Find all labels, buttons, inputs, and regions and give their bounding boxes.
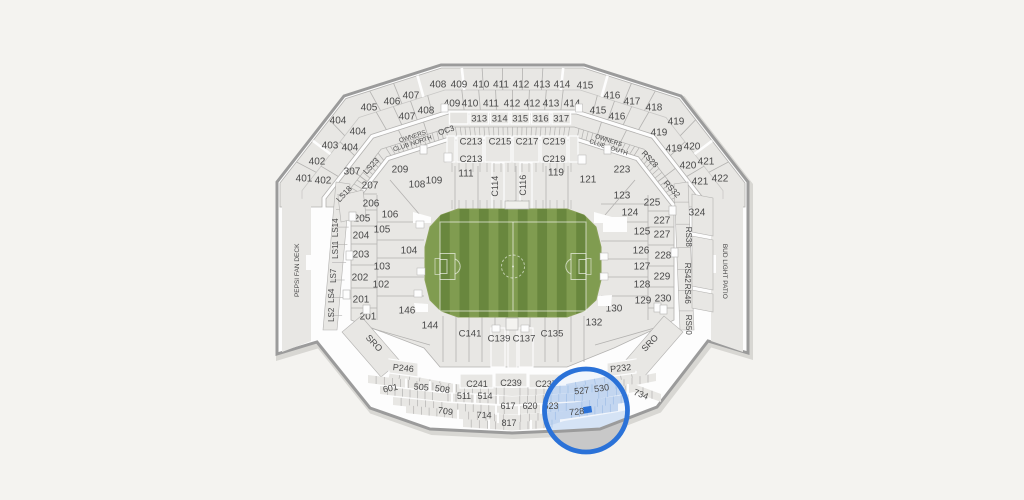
svg-text:420: 420 [680,161,697,172]
svg-text:202: 202 [352,273,369,284]
svg-text:C217: C217 [516,137,539,148]
svg-text:225: 225 [644,198,661,209]
svg-text:124: 124 [622,208,639,219]
svg-text:144: 144 [422,321,439,332]
svg-text:C213: C213 [460,137,483,148]
svg-text:405: 405 [361,103,378,114]
svg-text:403: 403 [322,141,339,152]
svg-text:419: 419 [668,117,685,128]
svg-text:407: 407 [403,91,420,102]
svg-text:415: 415 [577,81,594,92]
svg-text:410: 410 [462,99,479,110]
svg-text:105: 105 [374,225,391,236]
svg-text:709: 709 [437,405,453,417]
svg-text:LS14: LS14 [331,218,340,237]
svg-text:207: 207 [362,181,379,192]
svg-text:508: 508 [434,383,450,395]
svg-text:228: 228 [655,251,672,262]
svg-text:527: 527 [574,385,590,397]
svg-text:LS11: LS11 [331,240,340,259]
svg-text:223: 223 [614,165,631,176]
svg-text:RS38: RS38 [684,227,693,248]
svg-text:420: 420 [684,142,701,153]
svg-text:C239: C239 [500,378,522,388]
svg-text:313: 313 [471,114,487,125]
svg-text:404: 404 [342,143,359,154]
svg-text:109: 109 [426,176,443,187]
svg-text:419: 419 [651,128,668,139]
svg-text:315: 315 [512,114,528,125]
svg-text:204: 204 [353,231,370,242]
svg-text:415: 415 [590,106,607,117]
svg-text:402: 402 [309,157,326,168]
svg-text:C215: C215 [489,137,512,148]
svg-text:410: 410 [473,80,490,91]
svg-text:123: 123 [614,191,631,202]
svg-text:411: 411 [483,99,499,110]
svg-text:RS42: RS42 [683,263,692,284]
svg-text:412: 412 [524,99,541,110]
svg-text:617: 617 [500,401,515,411]
svg-text:LS2: LS2 [327,307,336,322]
svg-text:411: 411 [493,80,509,91]
svg-text:407: 407 [399,112,416,123]
svg-text:421: 421 [692,177,709,188]
svg-text:103: 103 [374,262,391,273]
svg-text:419: 419 [666,144,683,155]
svg-text:229: 229 [654,272,671,283]
svg-text:129: 129 [635,296,652,307]
svg-text:406: 406 [384,97,401,108]
svg-text:203: 203 [353,250,370,261]
svg-text:125: 125 [634,227,651,238]
svg-text:416: 416 [609,112,626,123]
svg-text:C116: C116 [518,175,528,196]
svg-text:416: 416 [604,91,621,102]
svg-text:227: 227 [654,230,671,241]
svg-text:106: 106 [382,210,399,221]
svg-text:119: 119 [548,168,564,179]
svg-text:412: 412 [513,80,530,91]
svg-text:324: 324 [689,208,706,219]
svg-text:C241: C241 [466,379,488,389]
svg-text:C141: C141 [459,328,482,339]
svg-text:121: 121 [580,175,597,186]
svg-text:413: 413 [543,99,560,110]
svg-text:LS4: LS4 [327,288,336,303]
svg-text:209: 209 [392,165,409,176]
svg-text:414: 414 [554,80,571,91]
svg-text:418: 418 [646,103,663,114]
svg-text:PEPSI FAN DECK: PEPSI FAN DECK [294,243,301,297]
svg-text:C139: C139 [488,333,511,344]
svg-text:817: 817 [501,418,516,428]
svg-text:314: 314 [492,114,508,125]
svg-text:BUD LIGHT PATIO: BUD LIGHT PATIO [721,244,728,299]
svg-text:LS7: LS7 [329,268,338,283]
svg-text:C135: C135 [541,328,564,339]
svg-text:307: 307 [344,167,361,178]
svg-text:412: 412 [504,99,521,110]
svg-text:146: 146 [399,306,416,317]
svg-text:108: 108 [409,180,426,191]
svg-text:408: 408 [430,80,447,91]
svg-text:511: 511 [457,391,471,401]
svg-text:413: 413 [534,80,551,91]
svg-text:316: 316 [533,114,549,125]
svg-text:C219: C219 [543,137,566,148]
svg-text:421: 421 [698,157,715,168]
svg-text:104: 104 [401,246,418,257]
svg-text:127: 127 [634,262,651,273]
svg-text:C219: C219 [543,154,566,165]
svg-text:620: 620 [522,401,537,411]
svg-text:132: 132 [586,318,603,329]
svg-text:C137: C137 [513,333,536,344]
svg-text:530: 530 [593,382,609,394]
svg-text:404: 404 [350,127,367,138]
svg-text:714: 714 [476,410,491,421]
svg-text:408: 408 [418,106,435,117]
svg-text:401: 401 [296,174,313,185]
svg-text:317: 317 [553,114,569,125]
svg-text:102: 102 [373,280,390,291]
svg-text:RS50: RS50 [684,315,693,336]
svg-text:227: 227 [654,216,671,227]
svg-text:206: 206 [363,199,380,210]
svg-text:417: 417 [624,97,641,108]
svg-text:111: 111 [458,169,474,180]
svg-text:128: 128 [634,280,651,291]
svg-text:409: 409 [451,80,468,91]
svg-text:126: 126 [633,246,650,257]
svg-text:404: 404 [330,116,347,127]
svg-text:402: 402 [315,176,332,187]
svg-text:422: 422 [712,174,729,185]
svg-text:505: 505 [413,381,429,392]
svg-text:C213: C213 [460,154,483,165]
svg-text:RS46: RS46 [683,284,692,305]
svg-text:C114: C114 [490,176,500,197]
svg-text:201: 201 [353,295,370,306]
svg-text:514: 514 [477,391,492,401]
svg-text:728: 728 [569,406,585,417]
